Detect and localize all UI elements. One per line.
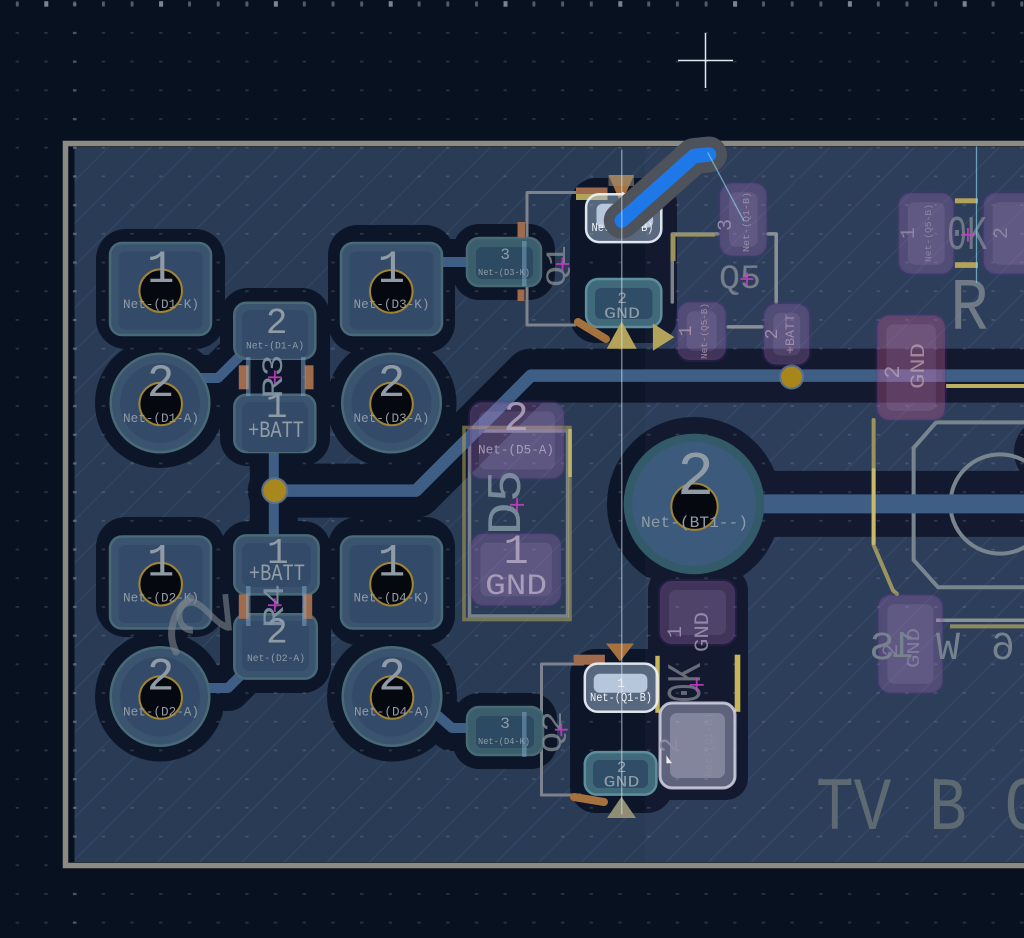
svg-text:2: 2 (677, 442, 714, 513)
svg-text:W: W (936, 627, 960, 672)
svg-text:R: R (950, 268, 988, 352)
svg-text:D5: D5 (481, 469, 535, 535)
svg-text:Net-(D3-K): Net-(D3-K) (354, 298, 430, 312)
svg-text:Q5: Q5 (719, 261, 761, 299)
svg-text:Net-(D5-A): Net-(D5-A) (478, 444, 554, 458)
svg-text:2: 2 (147, 358, 175, 410)
svg-text:1: 1 (665, 626, 688, 638)
svg-text:6: 6 (991, 627, 1015, 672)
svg-text:Net-(D4-K): Net-(D4-K) (354, 592, 430, 606)
svg-text:GND: GND (908, 343, 931, 389)
svg-text:3: 3 (500, 246, 510, 264)
svg-text:GND: GND (692, 612, 715, 652)
svg-text:+BATT: +BATT (248, 418, 304, 444)
svg-text:0K: 0K (661, 663, 715, 703)
svg-text:2: 2 (266, 303, 288, 344)
svg-text:Net-(Q1-B): Net-(Q1-B) (704, 713, 716, 777)
svg-text:Net-(D1-K): Net-(D1-K) (123, 298, 199, 312)
svg-text:2: 2 (147, 652, 175, 704)
svg-text:TV B C: TV B C (816, 767, 1024, 852)
svg-text:1: 1 (147, 538, 175, 590)
svg-text:1: 1 (898, 227, 921, 239)
svg-text:3: 3 (500, 715, 510, 733)
svg-text:1: 1 (147, 244, 175, 296)
svg-text:Net-(D2-A): Net-(D2-A) (123, 706, 199, 720)
svg-text:2: 2 (763, 329, 783, 340)
svg-text:1: 1 (378, 538, 406, 590)
svg-text:2: 2 (881, 365, 906, 378)
svg-text:1: 1 (677, 326, 697, 337)
svg-text:1: 1 (892, 626, 915, 669)
svg-text:+BATT: +BATT (783, 314, 798, 354)
svg-text:Q2: Q2 (539, 711, 570, 753)
svg-text:Net-(D1-A): Net-(D1-A) (246, 341, 304, 353)
svg-text:GND: GND (485, 570, 547, 604)
svg-text:Net-(Q1-B): Net-(Q1-B) (741, 192, 752, 252)
svg-text:Net-(BT1--): Net-(BT1--) (641, 514, 748, 532)
svg-text:1: 1 (377, 244, 405, 296)
svg-text:2: 2 (378, 652, 406, 704)
svg-text:Net-(D2-A): Net-(D2-A) (247, 653, 305, 665)
svg-text:2: 2 (655, 737, 685, 753)
svg-text:2: 2 (991, 227, 1014, 239)
svg-text:+BATT: +BATT (249, 561, 305, 587)
svg-text:Net-(Q1-B): Net-(Q1-B) (590, 692, 652, 705)
svg-text:S: S (870, 627, 894, 672)
svg-text:2: 2 (378, 358, 406, 410)
svg-text:Net-(Q5-B): Net-(Q5-B) (699, 303, 710, 359)
svg-text:Net-(D1-A): Net-(D1-A) (123, 412, 199, 426)
svg-text:Q1: Q1 (543, 245, 574, 287)
svg-text:3: 3 (715, 219, 738, 231)
svg-text:Net-(Q5-B): Net-(Q5-B) (923, 204, 934, 262)
svg-text:2: 2 (504, 395, 529, 443)
svg-text:1: 1 (617, 676, 625, 691)
svg-text:Net-(D4-A): Net-(D4-A) (354, 706, 430, 720)
svg-text:Net-(D3-A): Net-(D3-A) (354, 412, 430, 426)
